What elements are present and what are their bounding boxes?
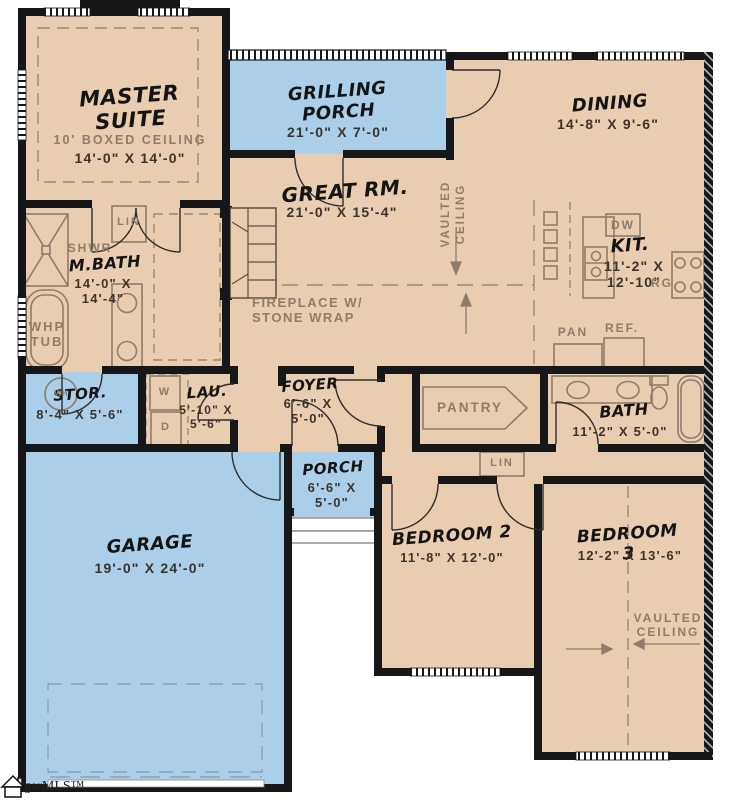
bedroom3-dims: 12'-2" X 13'-6" xyxy=(578,549,682,564)
master-ceiling-note: 10' BOXED CEILING xyxy=(54,133,207,147)
laundry-dims: 5'-10" X 5'-6" xyxy=(179,404,233,432)
great-room-vaulted-note: VAULTED CEILING xyxy=(426,172,482,256)
bath-dims: 11'-2" X 5'-0" xyxy=(572,425,667,440)
water-heater-label: WH xyxy=(54,389,67,398)
mbath-dims: 14'-0" X 14'-4" xyxy=(74,277,131,307)
porch-dims: 6'-6" X 5'-0" xyxy=(308,481,357,511)
bedroom2-label: BEDROOM 2 xyxy=(392,523,513,551)
washer-label: W xyxy=(159,386,171,399)
labels: MASTER SUITE 10' BOXED CEILING 14'-0" X … xyxy=(0,0,735,800)
mbath-linen-label: LIN xyxy=(117,216,141,229)
dryer-label: D xyxy=(161,421,171,434)
master-suite-dims: 14'-0" X 14'-0" xyxy=(74,150,185,166)
logo-text: garMLS™ xyxy=(24,779,84,795)
pan-label: PAN xyxy=(558,326,588,340)
grilling-porch-label: GRILLING PORCH xyxy=(287,79,388,127)
ref-label: REF. xyxy=(605,322,639,336)
hall-linen-label: LIN xyxy=(490,457,514,470)
foyer-label: FOYER xyxy=(281,375,339,396)
dining-label: DINING xyxy=(571,91,649,117)
laundry-label: LAU. xyxy=(186,383,227,403)
grilling-porch-dims: 21'-0" X 7'-0" xyxy=(287,124,389,140)
mbath-label: M.BATH xyxy=(68,252,141,275)
dining-dims: 14'-8" X 9'-6" xyxy=(557,116,659,132)
bedroom3-vaulted-note: VAULTED CEILING xyxy=(634,612,703,640)
storage-dims: 8'-4" X 5'-6" xyxy=(36,408,124,423)
garage-dims: 19'-0" X 24'-0" xyxy=(94,560,205,576)
whirlpool-tub-label: WHP TUB xyxy=(29,320,65,350)
kitchen-label: KIT. xyxy=(610,235,650,258)
bedroom2-dims: 11'-8" X 12'-0" xyxy=(400,551,504,566)
shower-label: SHWR xyxy=(68,242,113,256)
pantry-label: PANTRY xyxy=(437,400,503,416)
master-suite-label: MASTER SUITE xyxy=(78,81,181,136)
floor-plan: MASTER SUITE 10' BOXED CEILING 14'-0" X … xyxy=(0,0,735,800)
garage-label: GARAGE xyxy=(106,532,194,559)
porch-label: PORCH xyxy=(302,458,364,479)
bath-label: BATH xyxy=(599,400,650,422)
fireplace-note: FIREPLACE W/ STONE WRAP xyxy=(252,296,363,326)
foyer-dims: 6'-6" X 5'-0" xyxy=(284,397,333,427)
great-room-dims: 21'-0" X 15'-4" xyxy=(286,204,397,220)
great-room-label: GREAT RM. xyxy=(281,176,409,208)
dishwasher-label: DW xyxy=(611,219,635,233)
range-label: RG xyxy=(651,277,673,291)
